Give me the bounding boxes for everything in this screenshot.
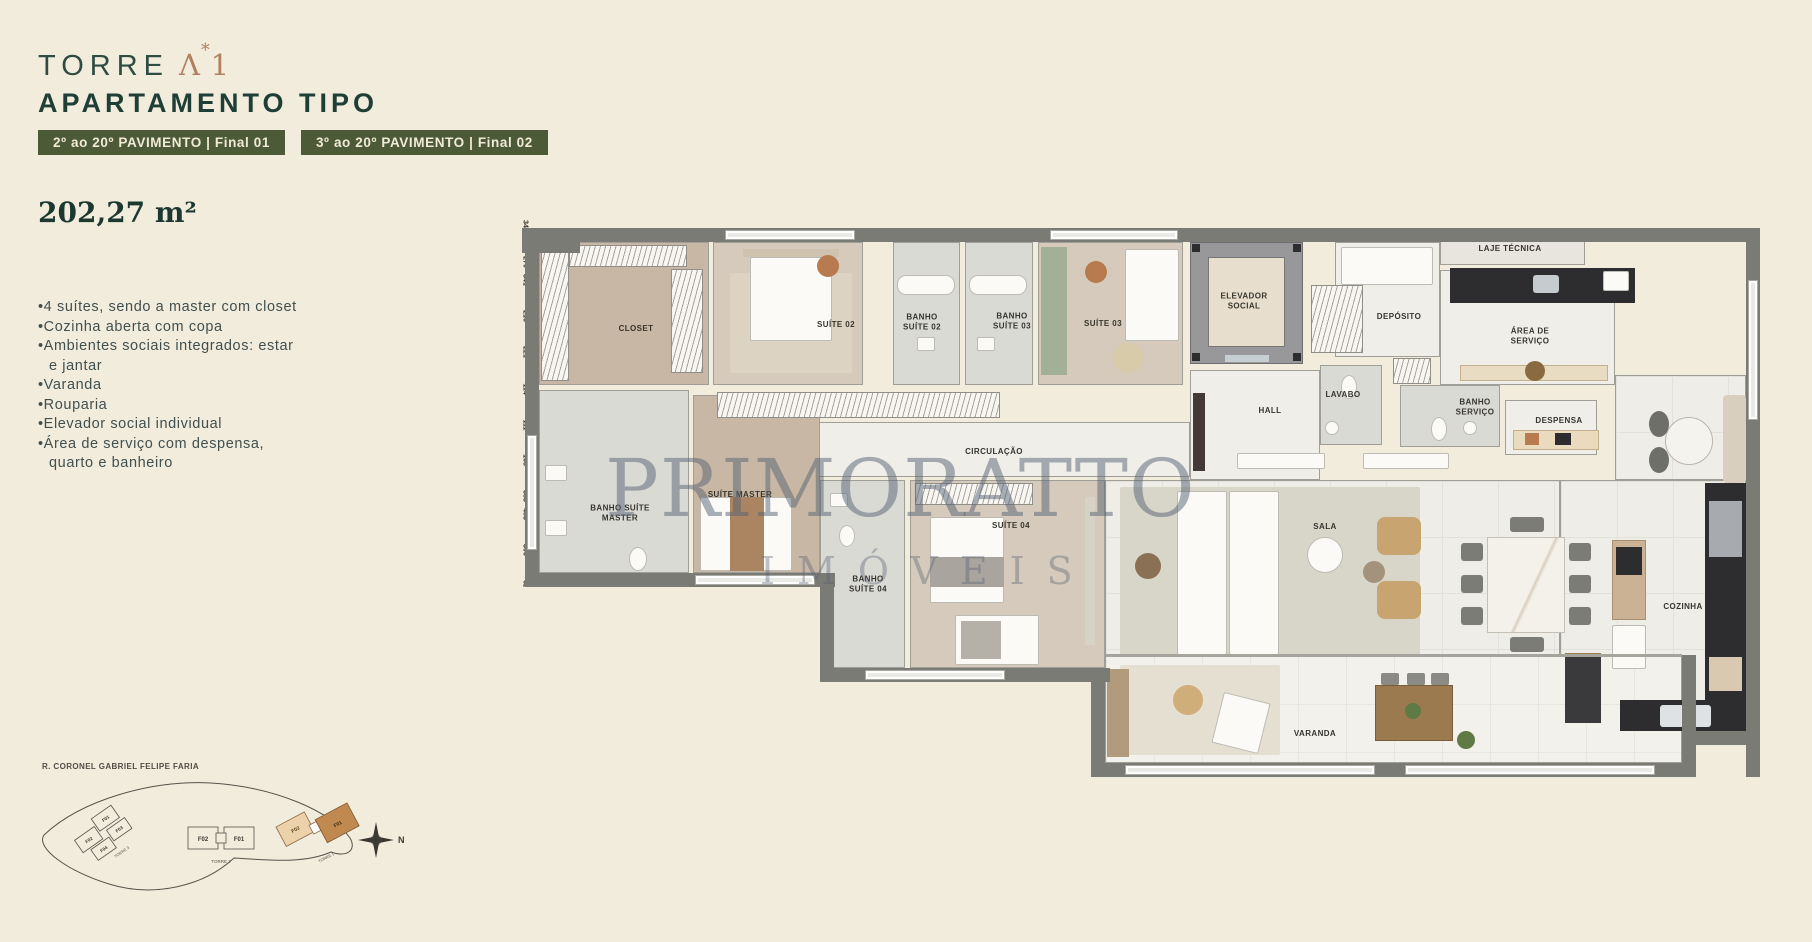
room-label-lavabo: LAVABO <box>1313 390 1373 400</box>
armchair-icon <box>1377 581 1421 619</box>
dining-chair-icon <box>1461 607 1483 625</box>
badge-final-01[interactable]: 2º ao 20º PAVIMENTO | Final 01 <box>38 130 285 155</box>
pavimento-badges: 2º ao 20º PAVIMENTO | Final 01 3º ao 20º… <box>38 130 548 155</box>
page: TORREΛ*1 APARTAMENTO TIPO 2º ao 20º PAVI… <box>0 0 1812 942</box>
feature-item: •4 suítes, sendo a master com closet <box>38 298 306 318</box>
dining-chair-icon <box>1461 543 1483 561</box>
sink-icon <box>1463 421 1477 435</box>
dining-chair-icon <box>1569 607 1591 625</box>
rug-icon <box>1113 343 1143 373</box>
bed-throw-icon <box>730 497 764 571</box>
room-label-cozinha: COZINHA <box>1643 602 1723 612</box>
window-icon <box>865 670 1005 680</box>
sliding-door-icon <box>1405 765 1655 775</box>
cabinet-icon <box>1193 393 1205 471</box>
room-label-banho-suite-03: BANHO SUÍTE 03 <box>986 312 1038 333</box>
sink-icon <box>1533 275 1559 293</box>
toilet-icon <box>1431 417 1447 441</box>
toilet-icon <box>917 337 935 351</box>
sink-icon <box>545 520 567 536</box>
dining-chair-icon <box>1461 575 1483 593</box>
room-label-deposito: DEPÓSITO <box>1359 312 1439 322</box>
sink-icon <box>545 465 567 481</box>
elevator-corner-icon <box>1293 244 1301 252</box>
tower-2-label: TORRE 2 <box>211 859 231 864</box>
window-icon <box>1050 230 1178 240</box>
room-label-hall: HALL <box>1245 406 1295 416</box>
compass-icon: N <box>356 820 408 866</box>
tower-1-footprint: F02 F01 TORRE 1 <box>276 792 366 874</box>
room-label-suite-03: SUÍTE 03 <box>1068 319 1138 329</box>
tower-1-label: TORRE 1 <box>317 851 335 864</box>
feature-list: •4 suítes, sendo a master com closet•Coz… <box>38 298 306 474</box>
feature-item: •Ambientes sociais integrados: estar e j… <box>38 337 306 376</box>
wreath-icon <box>1525 361 1545 381</box>
room-label-circulacao: CIRCULAÇÃO <box>944 447 1044 457</box>
background-patch <box>520 587 820 782</box>
floor-plan: CLOSET SUÍTE 02 BANHO SUÍTE 02 BANHO SUÍ… <box>525 225 1760 777</box>
room-label-suite-master: SUÍTE MASTER <box>690 490 790 500</box>
wall <box>820 573 834 682</box>
sink-icon <box>830 493 848 507</box>
elevator-corner-icon <box>1192 353 1200 361</box>
console-icon <box>1237 453 1325 469</box>
compass-north-label: N <box>398 835 405 845</box>
window-icon <box>1748 280 1758 420</box>
chair-icon <box>1649 447 1669 473</box>
elevator-corner-icon <box>1192 244 1200 252</box>
wardrobe-icon <box>569 245 687 267</box>
room-label-banho-suite-02: BANHO SUÍTE 02 <box>896 313 948 334</box>
feature-item: •Área de serviço com despensa, quarto e … <box>38 435 306 474</box>
wall <box>1091 668 1105 777</box>
toilet-icon <box>629 547 647 571</box>
pouf-icon <box>1363 561 1385 583</box>
dining-table-icon <box>1487 537 1565 633</box>
chair-icon <box>817 255 839 277</box>
bread-icon <box>1525 433 1539 445</box>
toilet-icon <box>977 337 995 351</box>
tv-console-icon <box>1085 497 1095 645</box>
chair-icon <box>1381 673 1399 685</box>
wardrobe-icon <box>915 483 1033 505</box>
sliding-door-icon <box>1105 654 1682 657</box>
pouf-icon <box>1173 685 1203 715</box>
side-table-icon <box>1135 553 1161 579</box>
street-name: R. CORONEL GABRIEL FELIPE FARIA <box>42 762 199 771</box>
stove-icon <box>1555 433 1571 445</box>
toilet-icon <box>839 525 855 547</box>
dining-chair-icon <box>1569 543 1591 561</box>
window-icon <box>527 435 537 550</box>
sofa-icon <box>1177 491 1227 655</box>
coffee-table-icon <box>1307 537 1343 573</box>
room-label-elevador: ELEVADOR SOCIAL <box>1211 292 1277 313</box>
window-icon <box>695 575 815 585</box>
elevator-door-icon <box>1225 355 1269 362</box>
room-label-banho-servico: BANHO SERVIÇO <box>1447 398 1503 419</box>
daybed-icon <box>961 621 1001 659</box>
page-title: APARTAMENTO TIPO <box>38 88 378 119</box>
wardrobe-icon <box>1393 358 1431 384</box>
room-label-suite-02: SUÍTE 02 <box>801 320 871 330</box>
tower-brand: TORREΛ*1 <box>38 48 230 83</box>
site-plan: F02 F01 F04 F03 TORRE 3 F02 F01 TORRE 2 … <box>36 775 376 905</box>
mattress-icon <box>1341 247 1433 285</box>
laundry-tank-icon <box>1603 271 1629 291</box>
background-patch <box>820 682 1091 782</box>
console-icon <box>1363 453 1449 469</box>
feature-item: •Elevador social individual <box>38 415 306 435</box>
bench-sofa-icon <box>1723 395 1746 483</box>
chair-icon <box>1649 411 1669 437</box>
dining-chair-icon <box>1510 637 1544 652</box>
feature-item: •Cozinha aberta com copa <box>38 318 306 338</box>
plant-icon <box>1457 731 1475 749</box>
feature-item: •Rouparia <box>38 396 306 416</box>
sink-icon <box>1660 705 1684 727</box>
feature-item: •Varanda <box>38 376 306 396</box>
wardrobe-icon <box>717 392 1000 418</box>
tower-number-logo: Λ*1 <box>179 48 230 82</box>
apartment-area: 202,27 m² <box>38 196 197 229</box>
chair-icon <box>1407 673 1425 685</box>
room-label-closet: CLOSET <box>601 324 671 334</box>
room-label-area-servico: ÁREA DE SERVIÇO <box>1499 327 1561 348</box>
dining-chair-icon <box>1510 517 1544 532</box>
sink-icon <box>1325 421 1339 435</box>
elevator-corner-icon <box>1293 353 1301 361</box>
tower-3-footprint: F02 F01 F04 F03 TORRE 3 <box>70 803 141 872</box>
bathtub-icon <box>897 275 955 295</box>
window-icon <box>725 230 855 240</box>
chair-icon <box>1431 673 1449 685</box>
sofa-icon <box>1229 491 1279 655</box>
armchair-icon <box>1377 517 1421 555</box>
tower-label: TORRE <box>38 50 169 82</box>
fridge-icon <box>1709 501 1742 557</box>
blanket-icon <box>930 557 1004 587</box>
plant-icon <box>1405 703 1421 719</box>
sliding-door-icon <box>1125 765 1375 775</box>
stove-icon <box>1612 625 1646 669</box>
wardrobe-icon <box>671 269 703 373</box>
room-label-suite-04: SUÍTE 04 <box>976 521 1046 531</box>
copa-table-icon <box>1665 417 1713 465</box>
wardrobe-icon <box>541 245 569 381</box>
wall <box>1682 655 1696 777</box>
bar-cabinet-icon <box>1565 653 1601 723</box>
room-label-banho-suite-04: BANHO SUÍTE 04 <box>842 575 894 596</box>
room-label-banho-master: BANHO SUÍTE MASTER <box>580 504 660 525</box>
badge-final-02[interactable]: 3º ao 20º PAVIMENTO | Final 02 <box>301 130 548 155</box>
dining-chair-icon <box>1569 575 1591 593</box>
svg-text:F01: F01 <box>234 837 245 843</box>
room-label-laje-tecnica: LAJE TÉCNICA <box>1460 244 1560 254</box>
bathtub-icon <box>969 275 1027 295</box>
room-label-varanda: VARANDA <box>1275 729 1355 739</box>
room-banho-suite-master <box>539 390 689 573</box>
desk-icon <box>1041 247 1067 375</box>
room-label-despensa: DESPENSA <box>1519 416 1599 426</box>
rouparia-wardrobe-icon <box>1311 285 1363 353</box>
room-label-sala: SALA <box>1295 522 1355 532</box>
cooktop-icon <box>1616 547 1642 575</box>
coffee-station-icon <box>1709 657 1742 691</box>
chair-icon <box>1085 261 1107 283</box>
stacked-chairs-icon <box>1107 669 1129 757</box>
svg-text:F02: F02 <box>198 837 209 843</box>
